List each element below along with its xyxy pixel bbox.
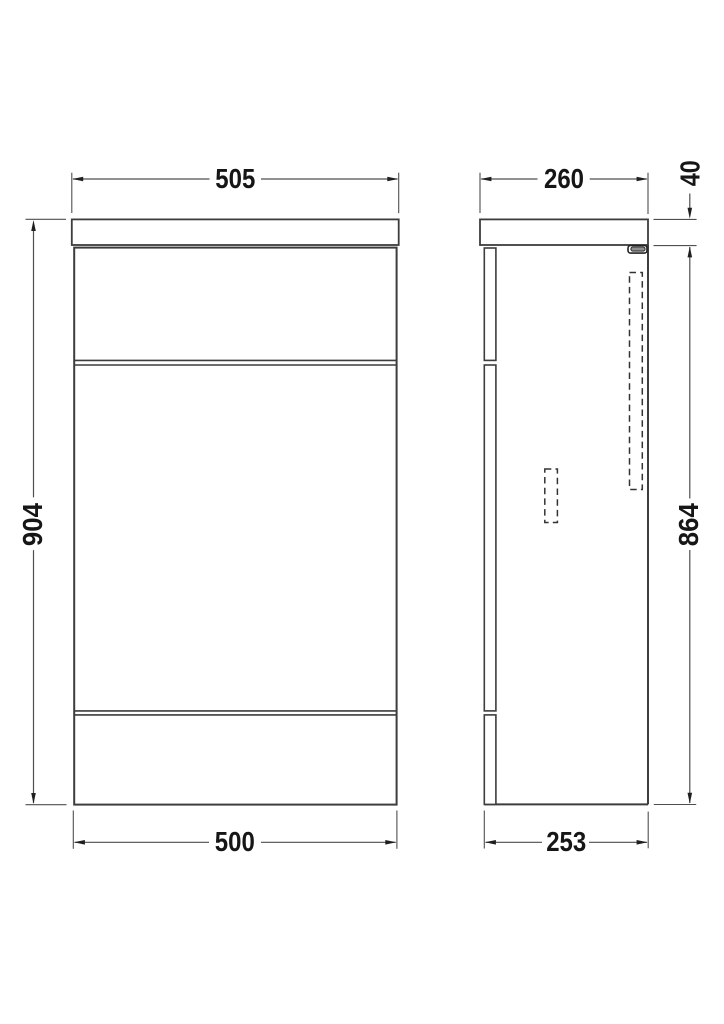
svg-text:500: 500	[215, 826, 255, 857]
svg-text:253: 253	[546, 826, 586, 857]
svg-text:260: 260	[544, 163, 584, 194]
svg-text:505: 505	[215, 163, 255, 194]
svg-text:40: 40	[674, 160, 705, 186]
svg-text:864: 864	[673, 503, 704, 546]
svg-text:904: 904	[17, 503, 48, 546]
